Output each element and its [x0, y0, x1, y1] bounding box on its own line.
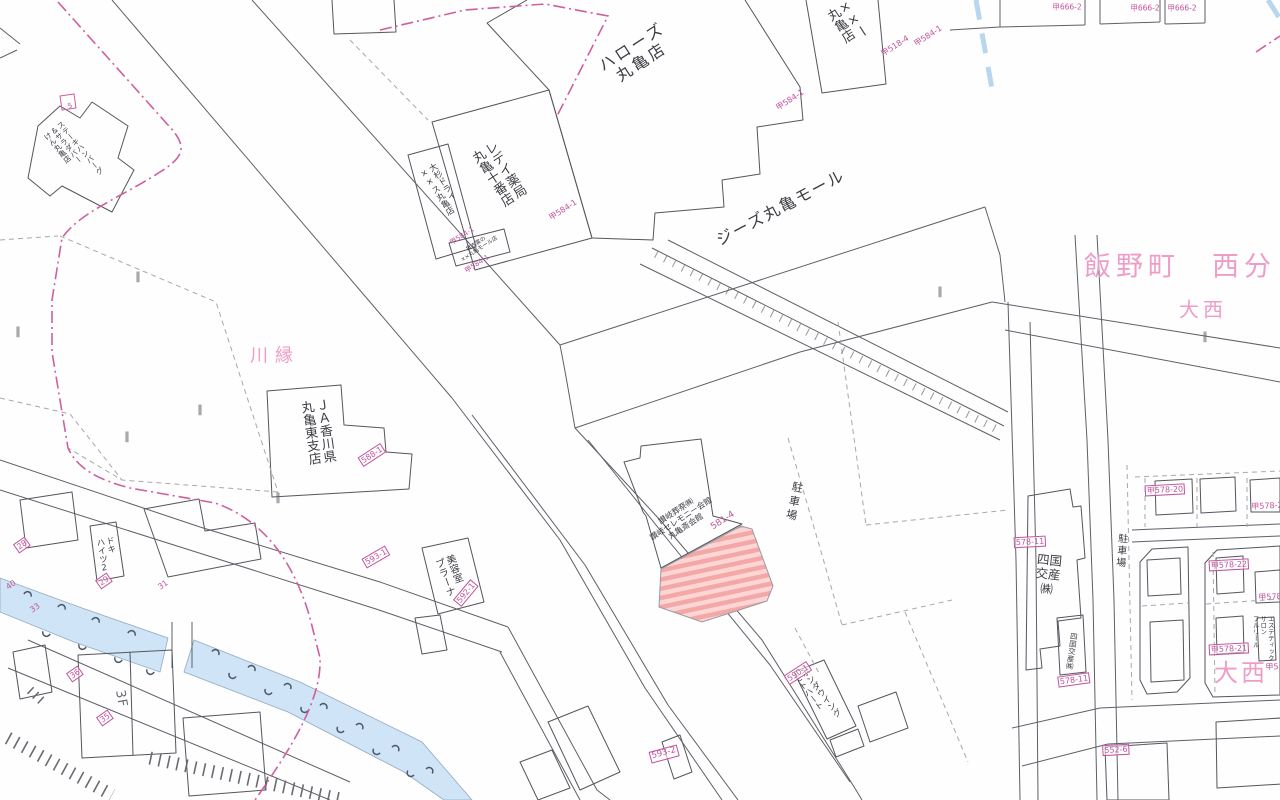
label-sanuki-ceremony: 讃岐葬祭㈱ 讃岐セレモニー会館 丸亀斎会館	[643, 488, 718, 550]
parcel-35: 35	[96, 709, 114, 726]
label-gies-marugame-mall: ジーズ丸亀モール	[713, 166, 848, 249]
field-mark-4: ‖	[197, 404, 203, 417]
label-shikoku-kosan: 四国 交産 ㈱	[1033, 552, 1062, 598]
parcel-581-4: 581-4	[709, 510, 737, 533]
parcel-ko578-20: 甲578-20	[1145, 483, 1186, 496]
parcel-ko518-4: 甲518-4	[879, 34, 910, 59]
map-labels: ハローズ 丸亀店ジーズ丸亀モールレデイ薬局 丸亀十番店大杉ドライ ××ス丸亀店貸…	[0, 0, 1280, 800]
label-iinocho-nishibun: 飯野町 西分	[1084, 251, 1276, 282]
parcel-ko584-1-b: 甲584-1	[912, 24, 943, 49]
label-kawaberi: 川縁	[250, 347, 300, 368]
parcel-29: 29	[95, 572, 113, 589]
parcel-ko578-22: 甲578-22	[1209, 558, 1250, 571]
parcel-36: 36	[66, 665, 84, 682]
parcel-578-11-a: 578-11	[1014, 536, 1047, 549]
parcel-ko666-2-b: 甲666-2	[1130, 5, 1159, 14]
parcel-33: 33	[28, 601, 42, 614]
label-onishi-large: 大西	[1214, 660, 1268, 688]
label-rental-shop: 貸衣裳の ××丸亀モール店	[457, 230, 499, 264]
parcel-ko584-1-a: 甲584-1	[774, 88, 805, 113]
parcel-552-6: 552-6	[1102, 744, 1130, 757]
label-ja-kagawa: ＪＡ香川県 丸亀東支店	[297, 398, 336, 467]
parcel-ko584-1-e: 甲584-1	[463, 253, 490, 275]
parcel-ko666-2-c: 甲666-2	[1167, 5, 1196, 14]
parcel-590-1: 590-1	[784, 661, 813, 685]
field-mark-2: ‖	[15, 326, 21, 339]
parcel-593-1: 593-1	[361, 545, 390, 568]
label-biyoshitsu-prana: 美容室 プラーナ	[431, 553, 466, 598]
label-osugi-dry: 大杉ドライ ××ス丸亀店	[417, 162, 463, 218]
label-halows-marugame: ハローズ 丸亀店	[595, 19, 678, 91]
field-mark-3: ‖	[275, 492, 281, 505]
cadastral-map: ハローズ 丸亀店ジーズ丸亀モールレデイ薬局 丸亀十番店大杉ドライ ××ス丸亀店貸…	[0, 0, 1280, 800]
parcel-ko5-x: 甲5	[1265, 662, 1279, 672]
parcel-ko578-x: 甲578	[1258, 592, 1280, 602]
field-mark-1: ‖	[135, 271, 141, 284]
label-top-store: ××ー 丸亀店	[822, 0, 870, 50]
parcel-578-11-b: 578-11	[1057, 672, 1091, 688]
parcel-28: 28	[13, 536, 31, 553]
parcel-40: 40	[4, 578, 18, 591]
label-redei-pharmacy: レデイ薬局 丸亀十番店	[467, 140, 527, 211]
label-doki-heights: ドキ ハイツ2	[93, 536, 118, 574]
label-esthetic-salon: エステティック サロン フルリール	[1251, 615, 1273, 661]
parcel-31: 31	[156, 578, 170, 591]
label-steak-ken: ステーキハンバーグ ＆サラダバー けん丸亀店	[41, 120, 104, 188]
parcel-ko578-21: 甲578-21	[1209, 642, 1250, 655]
label-parking-right: 駐車場	[1113, 533, 1128, 570]
parcel-593-2: 593-2	[649, 745, 680, 764]
label-parking-center: 駐車場	[782, 480, 803, 524]
label-honda-wing: ホンダウイング モトハート	[790, 668, 842, 727]
field-mark-6: ‖	[937, 286, 943, 299]
label-3f: 3F	[111, 689, 129, 709]
parcel-588-1: 588-1	[358, 443, 387, 467]
parcel-ko584-1-c: 甲584-1	[547, 198, 578, 223]
parcel-ko578-2: 甲578-2	[1251, 501, 1280, 512]
parcel-5: 5	[67, 101, 74, 110]
parcel-ko666-2-a: 甲666-2	[1052, 4, 1081, 13]
field-mark-5: ‖	[124, 431, 130, 444]
parcel-ko584-1-d: 甲584-1	[448, 225, 475, 247]
field-mark-7: ‖	[1202, 331, 1208, 344]
label-shikoku-kosan-small: 四国交産㈱	[1064, 632, 1078, 670]
parcel-592-1: 592-1	[453, 579, 479, 607]
label-onishi-small: 大西	[1179, 299, 1227, 322]
